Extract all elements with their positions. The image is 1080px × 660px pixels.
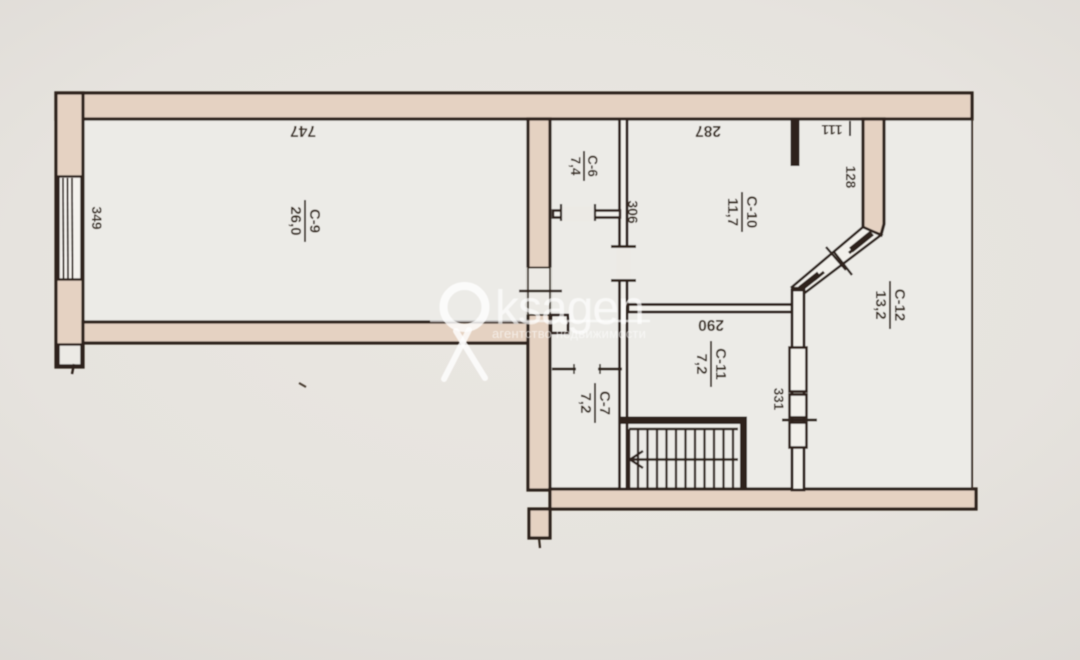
- svg-text:111: 111: [821, 122, 843, 137]
- svg-text:306: 306: [625, 200, 641, 224]
- svg-text:290: 290: [698, 316, 724, 333]
- svg-text:11,7: 11,7: [724, 198, 741, 226]
- svg-text:7,2: 7,2: [577, 393, 594, 414]
- svg-text:С-7: С-7: [596, 391, 613, 415]
- svg-text:С-9: С-9: [306, 209, 323, 233]
- svg-text:С-10: С-10: [743, 196, 760, 229]
- svg-text:747: 747: [290, 122, 316, 139]
- svg-text:128: 128: [843, 166, 858, 189]
- svg-text:7,4: 7,4: [568, 157, 583, 176]
- svg-text:агентство недвижимости: агентство недвижимости: [492, 326, 646, 341]
- svg-text:7,2: 7,2: [693, 354, 710, 375]
- svg-text:С-6: С-6: [585, 155, 600, 177]
- svg-text:С-12: С-12: [891, 289, 908, 322]
- svg-text:С-11: С-11: [712, 348, 729, 380]
- svg-text:13,2: 13,2: [872, 290, 889, 319]
- svg-text:349: 349: [89, 206, 105, 230]
- svg-text:331: 331: [771, 388, 786, 411]
- svg-text:26,0: 26,0: [287, 206, 304, 235]
- svg-text:287: 287: [695, 122, 721, 139]
